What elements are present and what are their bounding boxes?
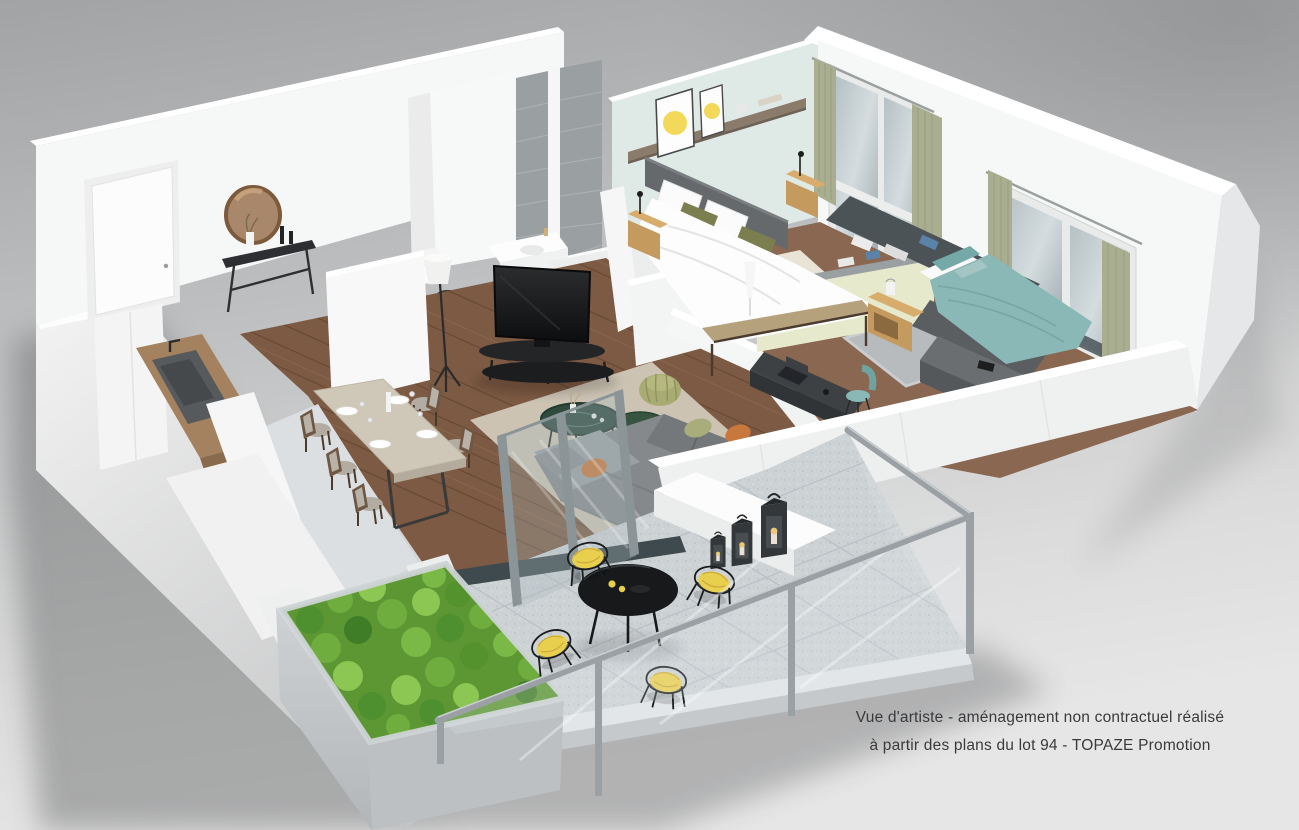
caption-line-1: Vue d'artiste - aménagement non contract…	[820, 704, 1260, 732]
door-handle	[164, 264, 168, 268]
balustrade-post	[595, 658, 602, 796]
caption-line-2: à partir des plans du lot 94 - TOPAZE Pr…	[820, 732, 1260, 760]
tv-stand	[474, 340, 618, 394]
apartment-3d-floorplan: Vue d'artiste - aménagement non contract…	[0, 0, 1299, 830]
tv	[494, 266, 590, 347]
pouf	[639, 374, 681, 406]
caption: Vue d'artiste - aménagement non contract…	[820, 704, 1260, 759]
candle-decor	[386, 392, 391, 412]
vase	[246, 232, 254, 246]
front-door	[84, 160, 180, 324]
